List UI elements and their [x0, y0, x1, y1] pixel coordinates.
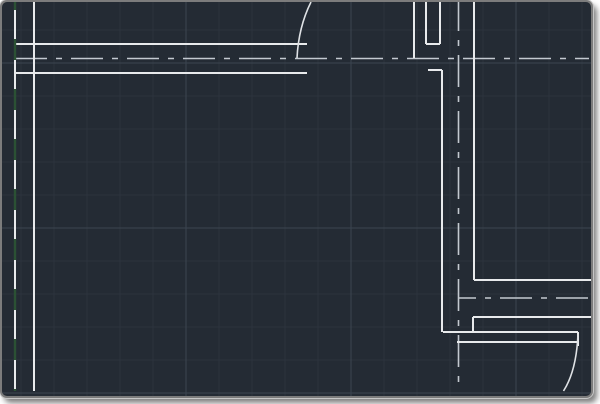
- wall-layer: [15, 2, 591, 391]
- cad-application-window: [0, 0, 593, 398]
- cad-canvas[interactable]: [0, 0, 593, 398]
- grid-layer: [0, 0, 593, 398]
